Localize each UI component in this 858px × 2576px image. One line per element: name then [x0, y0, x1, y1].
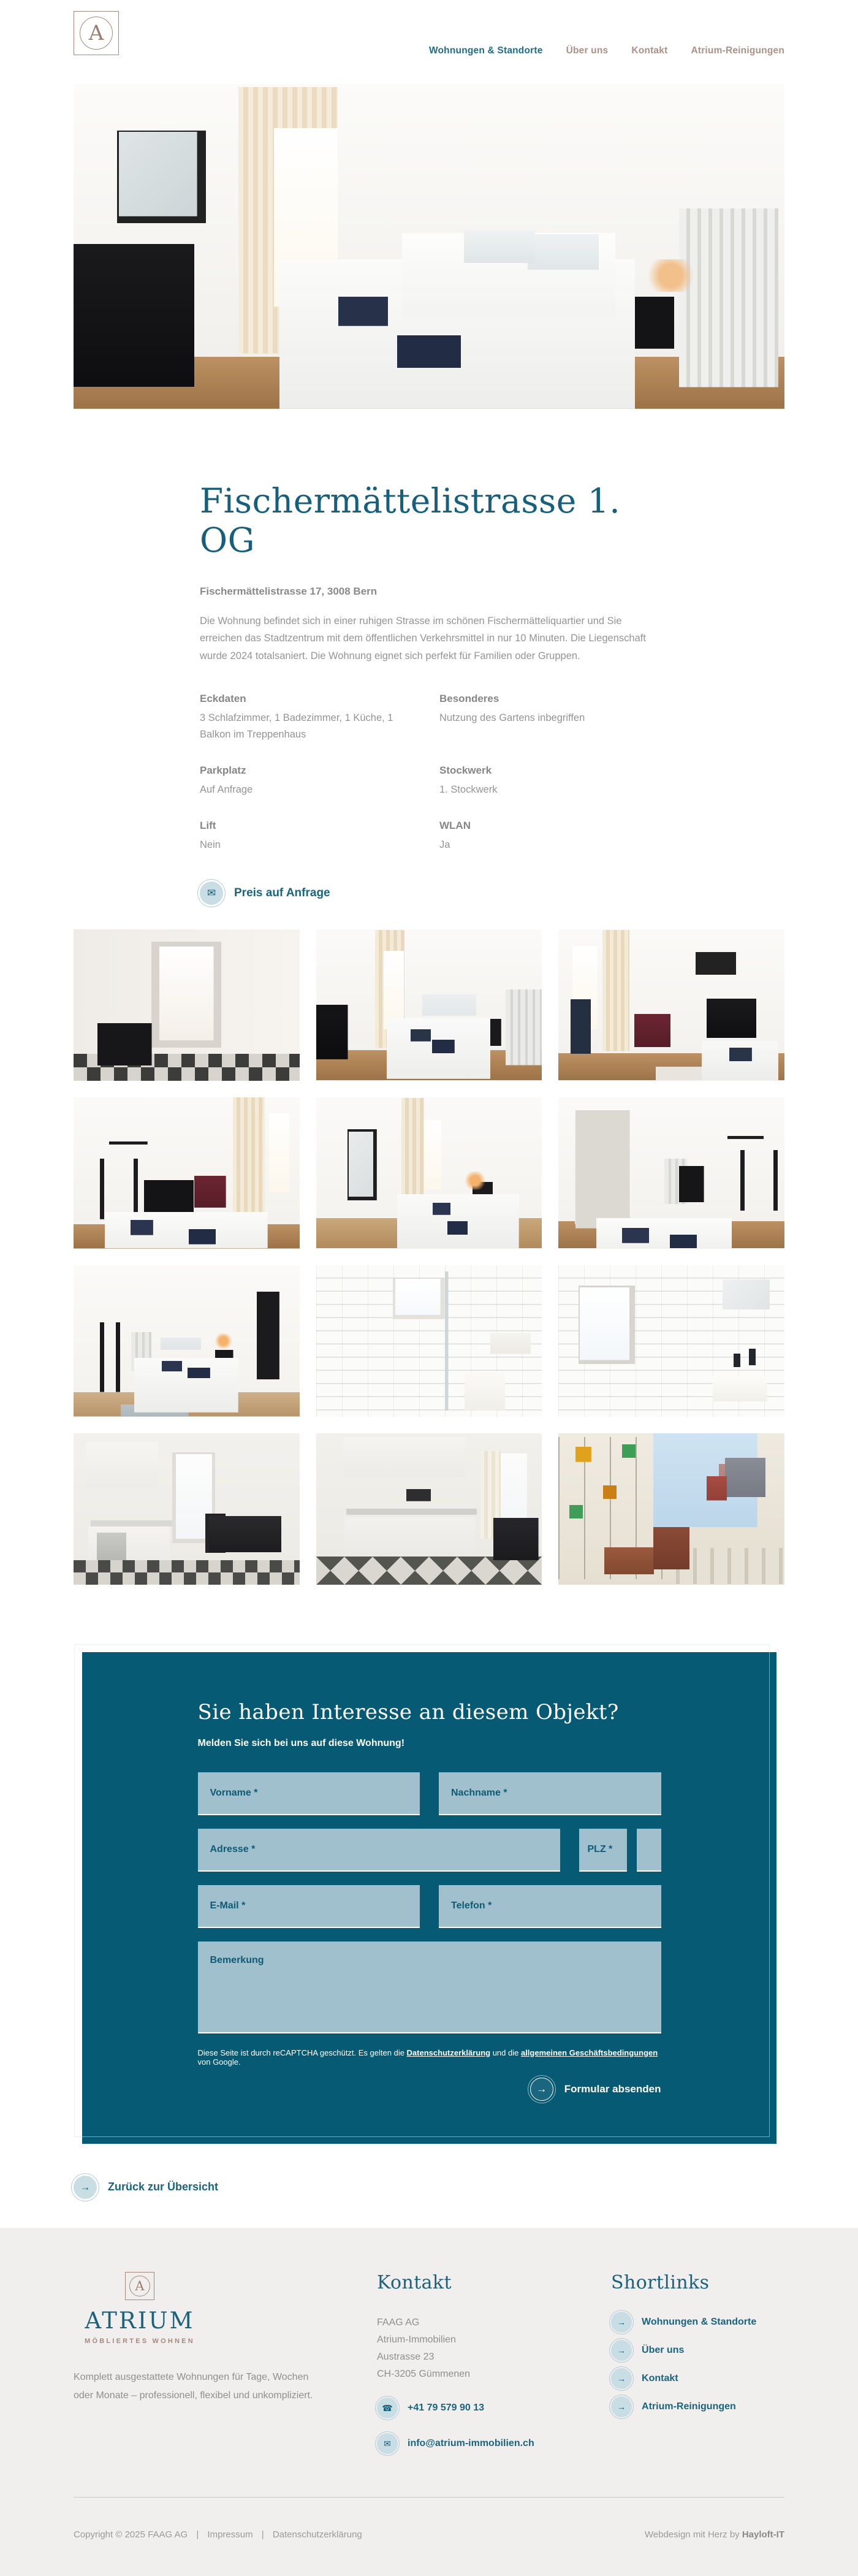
email-address: info@atrium-immobilien.ch	[408, 2438, 534, 2449]
shortlink-label: Über uns	[642, 2345, 684, 2356]
listing-description: Die Wohnung befindet sich in einer ruhig…	[200, 612, 661, 665]
submit-form-button[interactable]: → Formular absenden	[530, 2078, 661, 2101]
back-to-overview-label: Zurück zur Übersicht	[108, 2181, 218, 2193]
phone-number: +41 79 579 90 13	[408, 2403, 484, 2414]
interest-form	[198, 1772, 661, 2033]
gallery-photo-2[interactable]	[316, 929, 542, 1081]
nav-wohnungen-standorte[interactable]: Wohnungen & Standorte	[429, 45, 543, 56]
atrium-logo[interactable]: A	[74, 11, 119, 55]
detail-lift: Lift Nein	[200, 820, 421, 853]
logo-letter: A	[89, 23, 104, 44]
shortlink-kontakt[interactable]: → Kontakt	[611, 2368, 784, 2389]
telefon-input[interactable]	[439, 1885, 661, 1928]
shortlink-atrium-reinigungen[interactable]: → Atrium-Reinigungen	[611, 2396, 784, 2417]
arrow-right-icon: →	[611, 2368, 632, 2389]
recaptcha-text: Diese Seite ist durch reCAPTCHA geschütz…	[198, 2048, 407, 2057]
gallery-photo-6[interactable]	[558, 1097, 784, 1249]
gallery-photo-4[interactable]	[74, 1097, 300, 1249]
arrow-right-icon: →	[611, 2340, 632, 2361]
email-link[interactable]: ✉ info@atrium-immobilien.ch	[377, 2433, 574, 2454]
logo-ring-icon: A	[129, 2276, 150, 2296]
arrow-right-icon: →	[530, 2078, 553, 2101]
page-title: Fischermättelistrasse 1. OG	[200, 481, 661, 560]
footer-address-line: CH-3205 Gümmenen	[377, 2366, 574, 2383]
copyright-text: Copyright © 2025 FAAG AG	[74, 2529, 188, 2540]
detail-stockwerk: Stockwerk 1. Stockwerk	[439, 764, 661, 798]
nav-atrium-reinigungen[interactable]: Atrium-Reinigungen	[691, 45, 784, 56]
footer-address-line: Atrium-Immobilien	[377, 2331, 574, 2349]
photo-gallery	[74, 929, 784, 1585]
footer-shortlinks-heading: Shortlinks	[611, 2272, 784, 2293]
shortlink-wohnungen-standorte[interactable]: → Wohnungen & Standorte	[611, 2312, 784, 2333]
footer-brand-name: ATRIUM	[74, 2307, 206, 2334]
agb-link[interactable]: allgemeinen Geschäftsbedingungen	[521, 2048, 658, 2057]
footer-address-line: Austrasse 23	[377, 2349, 574, 2366]
detail-label: Stockwerk	[439, 764, 661, 777]
listing-address: Fischermättelistrasse 17, 3008 Bern	[200, 585, 661, 598]
detail-wlan: WLAN Ja	[439, 820, 661, 853]
detail-besonderes: Besonderes Nutzung des Gartens inbegriff…	[439, 693, 661, 742]
detail-value: Ja	[439, 837, 661, 853]
bemerkung-textarea[interactable]	[198, 1942, 661, 2033]
phone-icon: ☎	[377, 2398, 398, 2418]
envelope-icon: ✉	[200, 882, 223, 905]
gallery-photo-12[interactable]	[558, 1433, 784, 1585]
shortlink-label: Atrium-Reinigungen	[642, 2401, 736, 2412]
detail-value: 3 Schlafzimmer, 1 Badezimmer, 1 Küche, 1…	[200, 710, 421, 742]
nav-ueber-uns[interactable]: Über uns	[566, 45, 609, 56]
envelope-icon: ✉	[377, 2433, 398, 2454]
logo-letter: A	[135, 2280, 144, 2293]
footer: A ATRIUM MÖBLIERTES WOHNEN Komplett ausg…	[0, 2228, 858, 2576]
detail-value: Auf Anfrage	[200, 782, 421, 798]
footer-kontakt-heading: Kontakt	[377, 2272, 574, 2293]
detail-value: Nutzung des Gartens inbegriffen	[439, 710, 661, 726]
listing-section: Fischermättelistrasse 1. OG Fischermätte…	[200, 409, 661, 905]
form-subtitle: Melden Sie sich bei uns auf diese Wohnun…	[198, 1738, 661, 1749]
webdesign-text: Webdesign mit Herz by	[645, 2529, 742, 2540]
nachname-input[interactable]	[439, 1772, 661, 1815]
separator: |	[262, 2529, 264, 2540]
datenschutz-link[interactable]: Datenschutzerklärung	[407, 2048, 491, 2057]
gallery-photo-11[interactable]	[316, 1433, 542, 1585]
gallery-photo-5[interactable]	[316, 1097, 542, 1249]
phone-link[interactable]: ☎ +41 79 579 90 13	[377, 2398, 574, 2418]
submit-form-label: Formular absenden	[564, 2083, 661, 2095]
interest-form-section: Sie haben Interesse an diesem Objekt? Me…	[74, 1652, 784, 2144]
ort-input[interactable]	[637, 1829, 661, 1872]
interest-form-box: Sie haben Interesse an diesem Objekt? Me…	[82, 1652, 776, 2144]
footer-shortlinks-column: Shortlinks → Wohnungen & Standorte → Übe…	[611, 2272, 784, 2454]
logo-ring-icon: A	[80, 17, 113, 50]
vorname-input[interactable]	[198, 1772, 420, 1815]
shortlink-label: Wohnungen & Standorte	[642, 2317, 756, 2328]
adresse-input[interactable]	[198, 1829, 560, 1872]
back-to-overview-link[interactable]: → Zurück zur Übersicht	[74, 2176, 218, 2199]
price-request-button[interactable]: ✉ Preis auf Anfrage	[200, 882, 661, 905]
recaptcha-text: und die	[490, 2048, 521, 2057]
datenschutz-footer-link[interactable]: Datenschutzerklärung	[273, 2529, 362, 2540]
main-nav: Wohnungen & Standorte Über uns Kontakt A…	[429, 45, 784, 56]
footer-address: FAAG AG Atrium-Immobilien Austrasse 23 C…	[377, 2314, 574, 2383]
detail-label: Eckdaten	[200, 693, 421, 705]
gallery-photo-8[interactable]	[316, 1265, 542, 1417]
copyright-line: Copyright © 2025 FAAG AG | Impressum | D…	[74, 2529, 362, 2540]
detail-value: Nein	[200, 837, 421, 853]
webdesign-brand: Hayloft-IT	[742, 2529, 784, 2540]
arrow-right-icon: →	[74, 2176, 97, 2199]
gallery-photo-3[interactable]	[558, 929, 784, 1081]
detail-label: Besonderes	[439, 693, 661, 705]
footer-brand-column: A ATRIUM MÖBLIERTES WOHNEN Komplett ausg…	[74, 2272, 291, 2454]
price-request-label: Preis auf Anfrage	[234, 886, 330, 900]
header: A Wohnungen & Standorte Über uns Kontakt…	[0, 0, 858, 84]
separator: |	[196, 2529, 199, 2540]
footer-atrium-logo[interactable]: A	[125, 2272, 154, 2300]
gallery-photo-9[interactable]	[558, 1265, 784, 1417]
gallery-photo-1[interactable]	[74, 929, 300, 1081]
detail-parkplatz: Parkplatz Auf Anfrage	[200, 764, 421, 798]
arrow-right-icon: →	[611, 2396, 632, 2417]
plz-input[interactable]	[579, 1829, 627, 1872]
gallery-photo-10[interactable]	[74, 1433, 300, 1585]
impressum-link[interactable]: Impressum	[207, 2529, 252, 2540]
webdesign-credit: Webdesign mit Herz by Hayloft-IT	[645, 2529, 784, 2540]
shortlink-label: Kontakt	[642, 2373, 678, 2384]
recaptcha-text: von Google.	[198, 2057, 241, 2067]
shortlink-ueber-uns[interactable]: → Über uns	[611, 2340, 784, 2361]
footer-bottom-bar: Copyright © 2025 FAAG AG | Impressum | D…	[74, 2497, 784, 2540]
detail-value: 1. Stockwerk	[439, 782, 661, 798]
recaptcha-notice: Diese Seite ist durch reCAPTCHA geschütz…	[198, 2048, 661, 2067]
nav-kontakt[interactable]: Kontakt	[631, 45, 667, 56]
detail-label: Lift	[200, 820, 421, 832]
footer-kontakt-column: Kontakt FAAG AG Atrium-Immobilien Austra…	[377, 2272, 574, 2454]
arrow-right-icon: →	[611, 2312, 632, 2333]
gallery-photo-7[interactable]	[74, 1265, 300, 1417]
listing-details: Eckdaten 3 Schlafzimmer, 1 Badezimmer, 1…	[200, 693, 661, 853]
footer-tagline: Komplett ausgestattete Wohnungen für Tag…	[74, 2368, 319, 2404]
form-title: Sie haben Interesse an diesem Objekt?	[198, 1700, 661, 1724]
detail-eckdaten: Eckdaten 3 Schlafzimmer, 1 Badezimmer, 1…	[200, 693, 421, 742]
detail-label: WLAN	[439, 820, 661, 832]
footer-brand-subtitle: MÖBLIERTES WOHNEN	[74, 2338, 206, 2345]
detail-label: Parkplatz	[200, 764, 421, 777]
email-input[interactable]	[198, 1885, 420, 1928]
hero-photo	[74, 84, 784, 409]
footer-address-line: FAAG AG	[377, 2314, 574, 2331]
